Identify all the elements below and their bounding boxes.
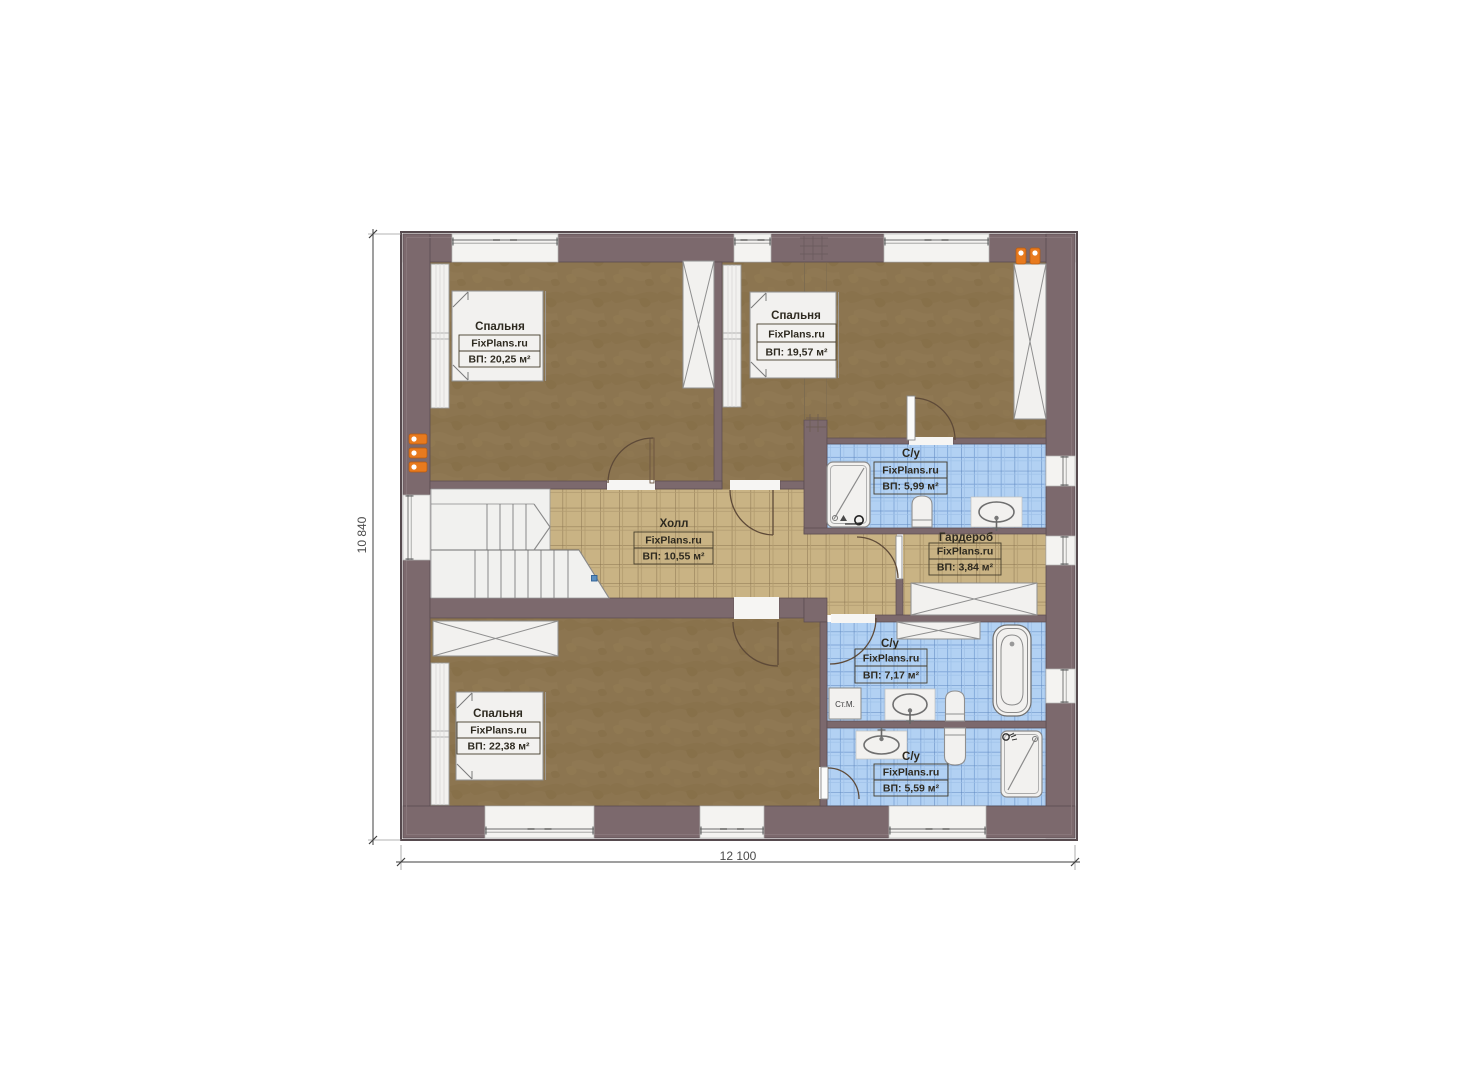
svg-text:С/у: С/у (902, 448, 921, 460)
svg-text:Холл: Холл (660, 518, 689, 530)
svg-text:FixPlans.ru: FixPlans.ru (645, 535, 702, 547)
svg-text:FixPlans.ru: FixPlans.ru (882, 465, 939, 477)
svg-text:Гардероб: Гардероб (939, 532, 993, 544)
svg-text:FixPlans.ru: FixPlans.ru (470, 725, 527, 737)
svg-text:10 840: 10 840 (355, 516, 369, 553)
svg-text:ВП: 10,55 м²: ВП: 10,55 м² (642, 551, 705, 563)
svg-text:ВП: 5,99 м²: ВП: 5,99 м² (882, 481, 939, 493)
svg-text:ВП: 3,84 м²: ВП: 3,84 м² (937, 562, 994, 574)
svg-text:FixPlans.ru: FixPlans.ru (471, 338, 528, 350)
svg-text:FixPlans.ru: FixPlans.ru (863, 653, 920, 665)
svg-text:Спальня: Спальня (473, 708, 523, 720)
svg-text:ВП: 20,25 м²: ВП: 20,25 м² (468, 354, 531, 366)
svg-text:ВП: 7,17 м²: ВП: 7,17 м² (863, 670, 920, 682)
svg-text:FixPlans.ru: FixPlans.ru (937, 546, 994, 558)
svg-text:12 100: 12 100 (720, 849, 757, 863)
svg-text:ВП: 19,57 м²: ВП: 19,57 м² (765, 347, 828, 359)
svg-text:Ст.М.: Ст.М. (835, 700, 855, 709)
svg-text:ВП: 5,59 м²: ВП: 5,59 м² (883, 783, 940, 795)
svg-text:Спальня: Спальня (475, 321, 525, 333)
svg-text:С/у: С/у (902, 751, 921, 763)
svg-text:С/у: С/у (881, 638, 900, 650)
svg-text:Спальня: Спальня (771, 310, 821, 322)
svg-text:FixPlans.ru: FixPlans.ru (768, 329, 825, 341)
svg-text:FixPlans.ru: FixPlans.ru (883, 767, 940, 779)
svg-text:ВП: 22,38 м²: ВП: 22,38 м² (467, 741, 530, 753)
